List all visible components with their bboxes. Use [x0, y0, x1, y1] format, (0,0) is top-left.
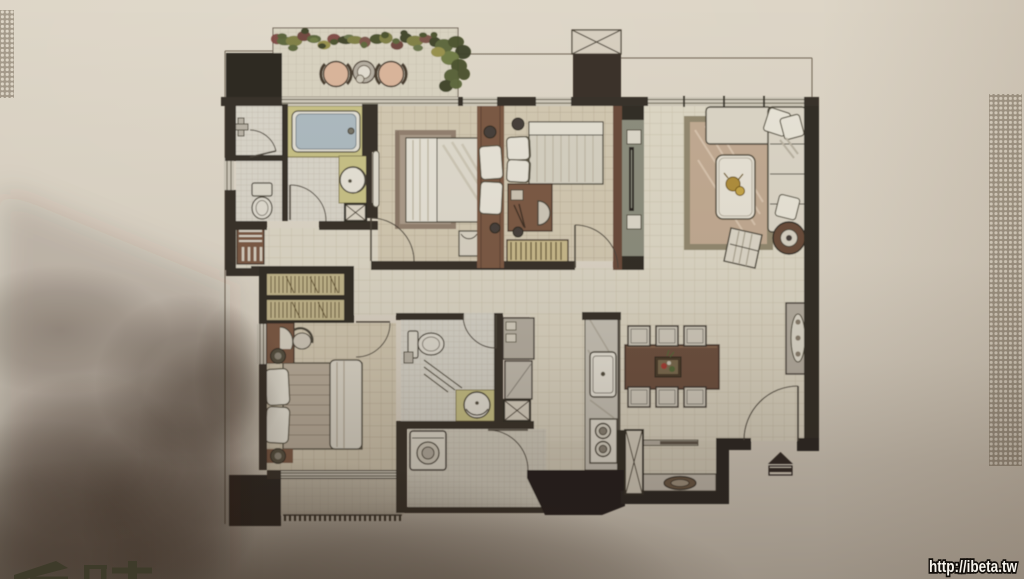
svg-text:http://ibeta.tw: http://ibeta.tw [929, 558, 1017, 576]
